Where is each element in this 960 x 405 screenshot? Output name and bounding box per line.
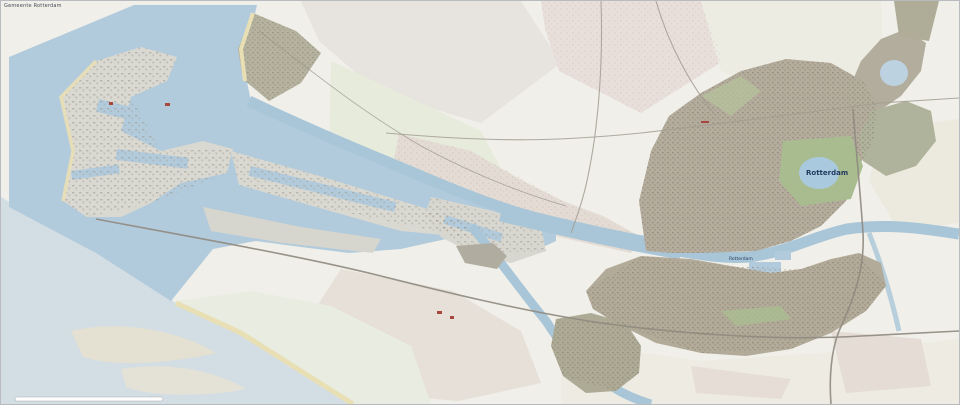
city-label-secondary: Rotterdam (729, 256, 753, 262)
red-roof-2 (165, 103, 170, 106)
zevenhuizerplas-lake (880, 60, 908, 86)
city-label-rotterdam: Rotterdam (806, 169, 848, 177)
rijnhaven (775, 251, 791, 260)
red-roof-4 (450, 316, 454, 319)
scale-bar (15, 397, 163, 401)
topographic-map-rotterdam: Rotterdam Rotterdam Gemeente Rotterdam (0, 0, 960, 405)
red-roof-3 (437, 311, 442, 314)
map-attribution: Gemeente Rotterdam (4, 3, 62, 9)
red-roof-1 (109, 102, 113, 105)
red-roof-5 (701, 121, 709, 123)
map-canvas: Rotterdam Rotterdam (1, 1, 959, 404)
ridderkerk-town (831, 331, 931, 393)
